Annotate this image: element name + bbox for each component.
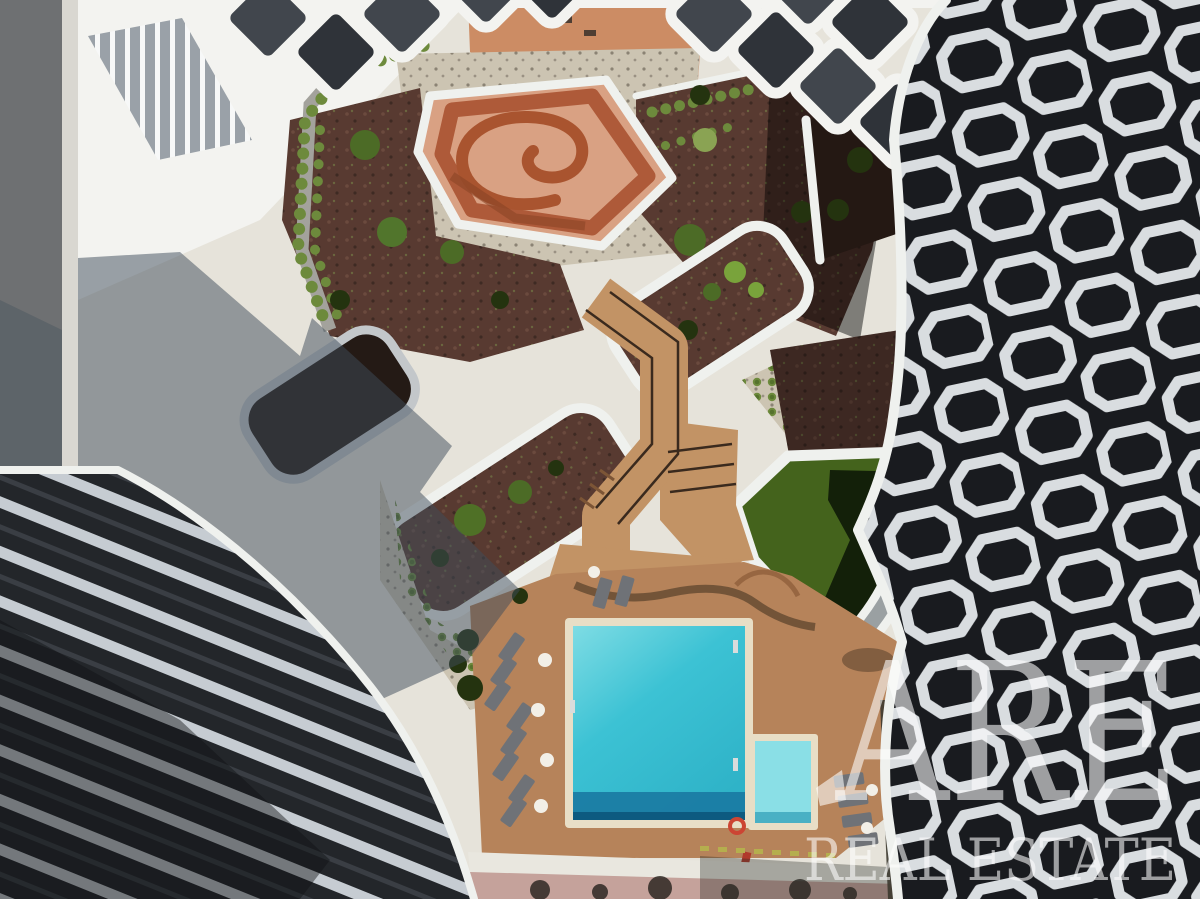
- umbrella: [540, 753, 554, 767]
- tree: [690, 85, 710, 105]
- aerial-photo-canvas: ARE REAL ESTATE: [0, 0, 1200, 899]
- pool-shadow: [755, 812, 811, 823]
- bush: [350, 130, 380, 160]
- umbrella: [531, 703, 545, 717]
- grass-plant: [693, 128, 717, 152]
- bush: [748, 282, 764, 298]
- umbrella: [534, 799, 548, 813]
- bush: [827, 199, 849, 221]
- kids-pool: [748, 734, 818, 830]
- bush: [377, 217, 407, 247]
- umbrella: [538, 653, 552, 667]
- pool-water: [573, 626, 745, 820]
- watermark-subtitle-text: REAL ESTATE: [804, 826, 1176, 894]
- pool-ladder: [570, 700, 575, 713]
- watermark-logo-text: ARE: [834, 623, 1180, 846]
- outdoor-chair: [584, 30, 596, 36]
- bush: [457, 675, 483, 701]
- bush: [508, 480, 532, 504]
- bush: [847, 147, 873, 173]
- bush: [440, 240, 464, 264]
- bush: [791, 201, 813, 223]
- pool-wall-shadow: [573, 812, 745, 820]
- bush: [724, 261, 746, 283]
- watermark: ARE REAL ESTATE: [804, 623, 1180, 894]
- bush: [703, 283, 721, 301]
- pool-deep-shadow: [573, 792, 745, 814]
- bush: [491, 291, 509, 309]
- pool-water: [755, 741, 811, 823]
- main-pool: [565, 618, 753, 828]
- bush: [548, 460, 564, 476]
- umbrella: [588, 566, 600, 578]
- aerial-photo: ARE REAL ESTATE: [0, 0, 1200, 899]
- pool-ladder: [733, 640, 738, 653]
- pool-ladder: [733, 758, 738, 771]
- bush: [330, 290, 350, 310]
